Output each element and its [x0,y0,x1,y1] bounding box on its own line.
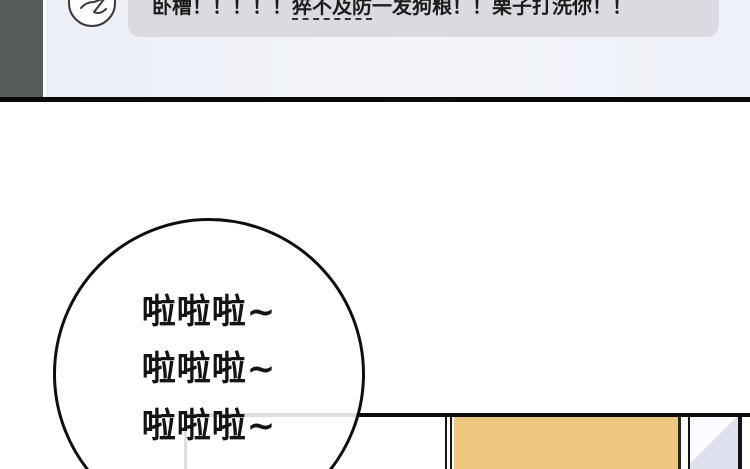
glass-pane [688,417,742,469]
panel-divider-bar [0,97,750,102]
balloon-line-1: 啦啦啦~ [53,284,365,341]
comic-page: 卧槽！！！！！猝不及防一发狗粮！！栗子打洗你！！ 啦啦啦~ 啦啦啦~ 啦啦啦~ [0,0,750,469]
doodle-face-icon [70,0,118,29]
door-frame-line [450,417,452,469]
chat-message-after: 一发狗粮！！栗子打洗你！！ [372,0,632,18]
avatar [68,0,116,27]
speech-balloon-text: 啦啦啦~ 啦啦啦~ 啦啦啦~ [53,284,365,455]
balloon-line-3: 啦啦啦~ [53,398,365,455]
balloon-line-2: 啦啦啦~ [53,341,365,398]
chat-message: 卧槽！！！！！猝不及防一发狗粮！！栗子打洗你！！ [152,0,632,18]
door-frame-line [445,417,447,469]
chat-panel: 卧槽！！！！！猝不及防一发狗粮！！栗子打洗你！！ [0,0,750,97]
chat-message-underlined: 猝不及防 [292,0,372,20]
sidebar-strip [0,0,46,97]
chat-message-before: 卧槽！！！！！ [152,0,292,18]
door-panel [454,417,681,469]
